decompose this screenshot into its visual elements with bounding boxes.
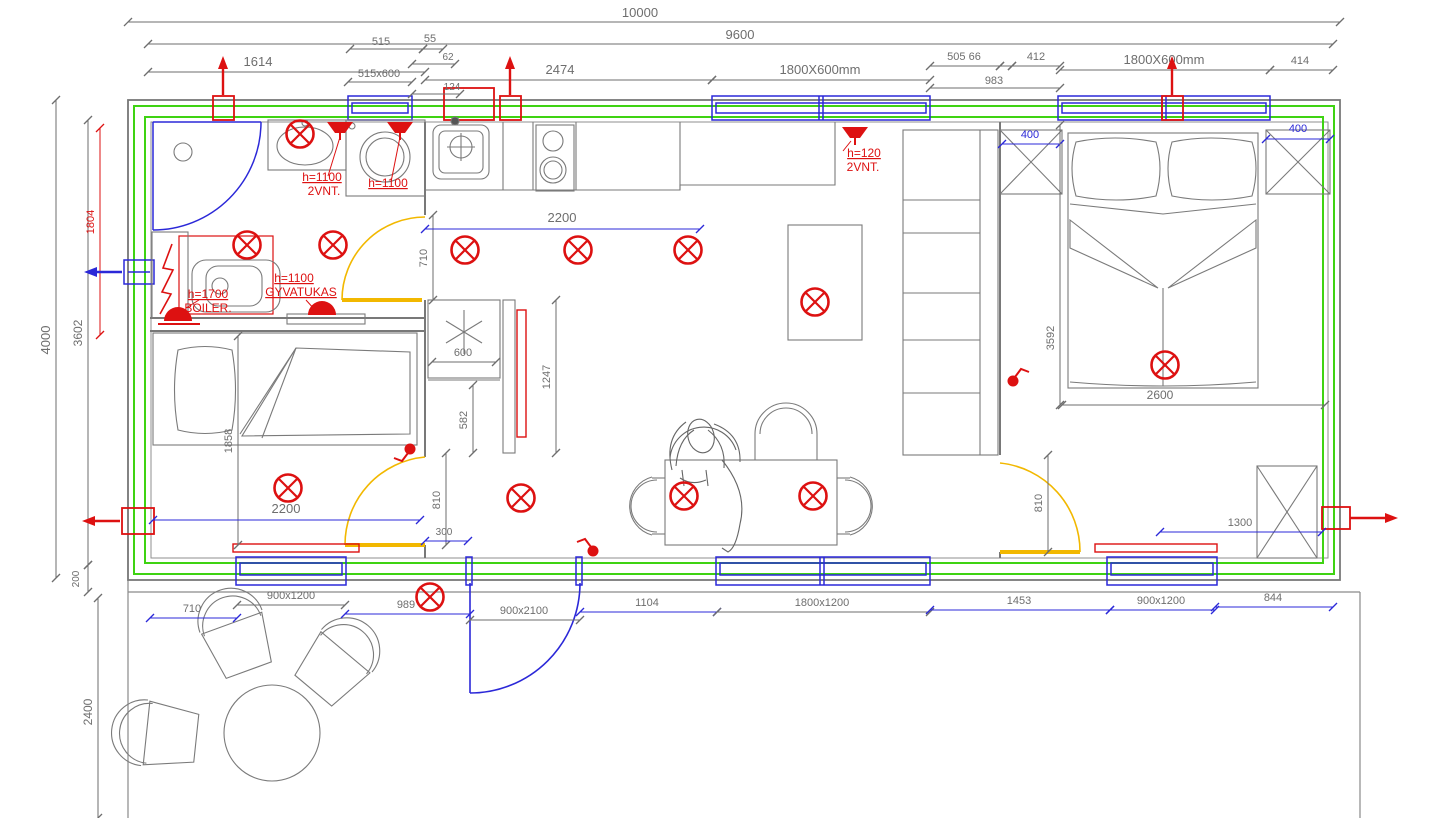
floor-plan-canvas: 10000960016145155562515x60012424741800X6… <box>0 0 1435 818</box>
dining-chair-top <box>755 403 817 460</box>
dim-label: 900x1200 <box>1137 595 1185 607</box>
dim-label: 414 <box>1291 55 1309 67</box>
ceiling-light-symbol <box>452 237 479 264</box>
double-bed <box>1068 133 1258 388</box>
switch-symbol <box>1008 369 1030 387</box>
dim-label: 505 66 <box>947 51 981 63</box>
dining-chair-left <box>630 477 665 535</box>
wall-lamp-icon <box>387 122 413 140</box>
wardrobe <box>1257 466 1317 558</box>
flow-arrow <box>218 56 228 95</box>
dim-label: 1800X600mm <box>780 62 861 77</box>
dim-label: 9600 <box>726 27 755 42</box>
radiator-bedroom2 <box>1095 544 1217 552</box>
right-wall-outlet-box <box>1322 507 1350 529</box>
dim-label: 4000 <box>38 326 53 355</box>
annotation-label: GYVATUKAS <box>265 285 337 299</box>
switch-symbol <box>577 539 599 557</box>
dim-label: 900x1200 <box>267 590 315 602</box>
annotation-label: h=1700 <box>188 287 229 301</box>
dimension-layer: 10000960016145155562515x60012424741800X6… <box>38 5 1344 818</box>
wall-lamp-icon <box>842 127 868 145</box>
interior-walls <box>150 122 1000 558</box>
shower-screen <box>153 122 261 230</box>
dim-label: 300 <box>436 527 453 538</box>
dim-label: 515 <box>372 36 390 48</box>
dim-label: 55 <box>424 33 436 45</box>
ceiling-light-symbol <box>417 584 444 611</box>
ceiling-light-symbol <box>1152 352 1179 379</box>
kitchen-sink <box>433 117 489 179</box>
flow-arrow <box>505 56 515 95</box>
dim-label: 1300 <box>1228 517 1252 529</box>
dim-label: 124 <box>444 82 461 93</box>
shelf-column <box>428 300 515 453</box>
dining-chair-right <box>837 477 872 535</box>
radiator-bedroom1 <box>233 544 359 552</box>
dim-label: 3602 <box>71 319 85 346</box>
dim-label: 10000 <box>622 5 658 20</box>
dim-label: 200 <box>71 570 82 587</box>
shelf-unit <box>903 130 998 455</box>
dim-label: 1800x1200 <box>795 597 849 609</box>
ceiling-light-symbol <box>671 483 698 510</box>
annotation-label: 1804 <box>85 210 97 234</box>
annotation-label: h=1100 <box>274 271 314 285</box>
ceiling-light-symbol <box>675 237 702 264</box>
dim-label: 582 <box>458 411 470 429</box>
dim-label: 1858 <box>223 429 235 453</box>
dim-label: 1800X600mm <box>1124 52 1205 67</box>
floor-plan-page: 10000960016145155562515x60012424741800X6… <box>0 0 1435 818</box>
dim-label: 710 <box>418 249 430 267</box>
single-bed <box>153 333 417 445</box>
dim-label: 844 <box>1264 592 1282 604</box>
dim-label: 2400 <box>81 698 95 725</box>
dim-label: 400 <box>1021 129 1039 141</box>
furniture <box>108 117 1330 781</box>
ceiling-light-symbol <box>802 289 829 316</box>
dim-label: 3592 <box>1045 326 1057 350</box>
entrance-door <box>470 583 580 693</box>
dim-label: 2474 <box>546 62 575 77</box>
annotation-label: h=1100 <box>302 170 342 184</box>
electric-panel-bolt-icon <box>160 244 173 314</box>
dim-label: 400 <box>1289 123 1307 135</box>
stove-fireplace <box>428 300 500 378</box>
bedroom1-door <box>345 457 425 545</box>
dim-label: 515x600 <box>358 68 400 80</box>
ceiling-light-symbol <box>565 237 592 264</box>
flow-arrow <box>1350 513 1398 523</box>
wall-lamp-icon <box>327 122 353 140</box>
dim-label: 412 <box>1027 51 1045 63</box>
annotation-label: BOILER. <box>184 301 231 315</box>
radiator-vertical <box>517 310 526 437</box>
dim-label: 810 <box>1033 494 1045 512</box>
rug <box>788 225 862 340</box>
shower-drain <box>174 143 192 161</box>
flow-arrow <box>84 267 122 277</box>
annotation-label: 2VNT. <box>308 184 341 198</box>
ceiling-light-symbol <box>320 232 347 259</box>
dim-label: 2200 <box>272 501 301 516</box>
dim-label: 600 <box>454 347 472 359</box>
dim-label: 810 <box>431 491 443 509</box>
dim-label: 710 <box>183 603 201 615</box>
ceiling-light-symbol <box>800 483 827 510</box>
ceiling-light-symbol <box>275 475 302 502</box>
patio-chair-3 <box>108 697 199 772</box>
dome-lamp-icon <box>308 301 336 315</box>
nightstand-right <box>1266 130 1330 194</box>
dim-label: 1453 <box>1007 595 1031 607</box>
dim-label: 983 <box>985 75 1003 87</box>
left-wall-outlet-box <box>122 508 154 534</box>
bathroom-door <box>342 217 425 300</box>
dim-label: 62 <box>442 52 454 63</box>
patio-table <box>224 685 320 781</box>
patio-chair-2 <box>288 604 393 712</box>
dim-label: 900x2100 <box>500 605 548 617</box>
dim-label: 2200 <box>548 210 577 225</box>
annotation-label: h=120 <box>847 146 881 160</box>
annotation-label: 2VNT. <box>847 160 880 174</box>
dim-label: 1247 <box>541 365 553 389</box>
dim-label: 1104 <box>635 597 659 609</box>
cooktop <box>536 125 574 191</box>
dim-label: 2600 <box>1147 388 1174 402</box>
dim-label: 989 <box>397 599 415 611</box>
ceiling-light-symbol <box>287 121 314 148</box>
kitchen-counter <box>425 122 835 190</box>
annotation-label: h=1100 <box>368 176 408 190</box>
ceiling-light-symbol <box>508 485 535 512</box>
site-boundary <box>128 100 1360 818</box>
dim-label: 1614 <box>244 54 273 69</box>
